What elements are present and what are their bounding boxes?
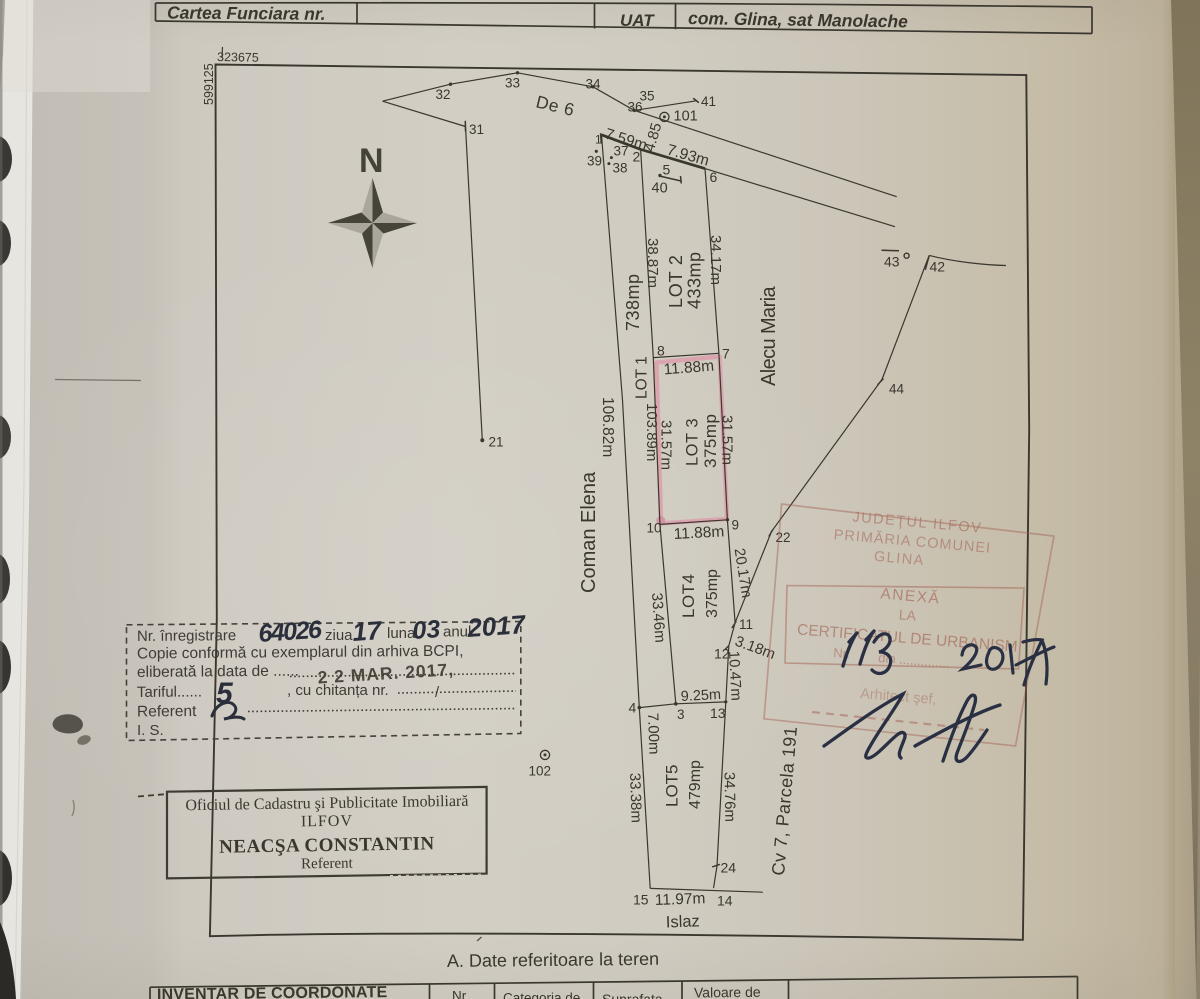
svg-text:20.17m: 20.17m (731, 547, 756, 599)
svg-text:24: 24 (721, 860, 737, 876)
svg-text:479mp: 479mp (687, 760, 704, 809)
svg-text:Valoare de: Valoare de (694, 984, 761, 999)
svg-text:10.47m: 10.47m (725, 650, 745, 701)
svg-text:2017: 2017 (465, 609, 527, 643)
svg-text:11: 11 (739, 617, 753, 632)
svg-text:34: 34 (586, 77, 602, 92)
svg-text:4.85: 4.85 (641, 121, 665, 154)
svg-text:03: 03 (411, 615, 441, 645)
svg-text:106.82m: 106.82m (599, 397, 616, 457)
svg-text:32: 32 (436, 87, 451, 102)
svg-text:LOT 2: LOT 2 (666, 254, 686, 308)
svg-text:31.57m: 31.57m (719, 415, 736, 465)
svg-text:7.93m: 7.93m (665, 142, 711, 170)
svg-text:UAT: UAT (620, 11, 655, 30)
svg-text:738mp: 738mp (623, 273, 643, 331)
svg-text:42: 42 (930, 259, 946, 275)
svg-text:11.88m: 11.88m (663, 358, 715, 379)
svg-text:21: 21 (489, 435, 504, 450)
svg-text:33.38m: 33.38m (626, 773, 645, 824)
svg-text:A. Date referitoare la teren: A. Date referitoare la teren (447, 949, 659, 971)
svg-text:103.89m: 103.89m (643, 403, 660, 461)
svg-text:34.17m: 34.17m (707, 235, 724, 285)
svg-text:41: 41 (701, 94, 716, 109)
svg-text:Alecu Maria: Alecu Maria (758, 286, 780, 386)
svg-text:Nr.: Nr. (452, 989, 469, 999)
svg-text:34.76m: 34.76m (721, 772, 739, 822)
svg-text:102: 102 (529, 764, 552, 779)
svg-text:Referent: Referent (137, 703, 197, 721)
svg-text:44: 44 (889, 382, 905, 397)
svg-text:13: 13 (710, 705, 726, 721)
svg-text:ANEXĂ: ANEXĂ (880, 585, 941, 607)
svg-text:Coman Elena: Coman Elena (578, 471, 600, 593)
svg-text:ILFOV: ILFOV (301, 813, 353, 831)
svg-text:LOT 3: LOT 3 (684, 418, 702, 466)
svg-text:I. S.: I. S. (137, 722, 164, 739)
svg-text:Nr. înregistrare: Nr. înregistrare (137, 627, 236, 645)
svg-text:Suprafata: Suprafata (602, 991, 663, 999)
svg-text:8: 8 (657, 343, 665, 359)
svg-text:599125: 599125 (202, 63, 216, 105)
svg-text:33: 33 (505, 76, 520, 91)
svg-text:LOT5: LOT5 (663, 764, 682, 807)
svg-text:GLINA: GLINA (873, 549, 925, 569)
svg-text:Oficiul de Cadastru şi Publici: Oficiul de Cadastru şi Publicitate Imobi… (185, 793, 468, 814)
svg-text:9.25m: 9.25m (680, 687, 721, 705)
svg-text:43: 43 (884, 254, 900, 270)
svg-text:NEACŞA CONSTANTIN: NEACŞA CONSTANTIN (219, 833, 435, 857)
svg-text:64026: 64026 (257, 616, 323, 648)
svg-text:17: 17 (351, 615, 383, 647)
svg-text:LOT4: LOT4 (679, 573, 698, 618)
svg-text:De 6: De 6 (534, 91, 577, 120)
svg-text:LA: LA (898, 606, 917, 623)
svg-text:14: 14 (717, 893, 733, 909)
svg-text:2 2 MAR. 2017,: 2 2 MAR. 2017, (317, 659, 455, 687)
svg-text:com. Glina, sat Manolache: com. Glina, sat Manolache (688, 8, 908, 31)
svg-text:5: 5 (663, 162, 671, 178)
svg-text:11.97m: 11.97m (655, 890, 706, 909)
svg-text:Cv 7, Parcela 191: Cv 7, Parcela 191 (768, 725, 801, 876)
svg-text:375mp: 375mp (704, 569, 721, 618)
svg-text:N: N (359, 142, 384, 180)
svg-text:31.57m: 31.57m (658, 420, 675, 470)
svg-text:101: 101 (674, 109, 698, 125)
svg-text:3: 3 (677, 707, 685, 722)
svg-text:Tariful......: Tariful...... (137, 683, 202, 701)
svg-text:31: 31 (469, 122, 484, 137)
svg-text:11.88m: 11.88m (673, 523, 724, 543)
svg-text:323675: 323675 (217, 50, 259, 65)
svg-text:38: 38 (613, 161, 628, 176)
svg-text:/: / (435, 684, 440, 701)
svg-text:433mp: 433mp (685, 251, 705, 309)
svg-text:375mp: 375mp (701, 414, 720, 468)
svg-text:7.00m: 7.00m (644, 713, 662, 755)
svg-text:10: 10 (647, 521, 662, 536)
svg-text:CERTIFICATUL DE URBANISM: CERTIFICATUL DE URBANISM (797, 621, 1019, 655)
svg-text:LOT 1: LOT 1 (634, 356, 651, 399)
svg-text:ziua: ziua (325, 627, 353, 644)
svg-text:36: 36 (628, 100, 643, 115)
svg-text:INVENTAR DE COORDONATE: INVENTAR DE COORDONATE (157, 984, 388, 999)
svg-text:Referent: Referent (301, 856, 354, 873)
svg-text:6: 6 (710, 169, 718, 185)
svg-text:1: 1 (595, 133, 602, 147)
svg-text:Islaz: Islaz (666, 912, 701, 931)
svg-text:40: 40 (652, 181, 668, 197)
svg-text:38.87m: 38.87m (644, 238, 661, 288)
svg-text:7: 7 (722, 346, 730, 362)
svg-text:Copie conformă cu exemplarul d: Copie conformă cu exemplarul din arhiva … (137, 643, 464, 663)
svg-text:Categoria de: Categoria de (503, 991, 580, 999)
svg-text:4: 4 (629, 700, 637, 716)
svg-text:15: 15 (633, 892, 649, 908)
svg-text:Cartea Funciara nr.: Cartea Funciara nr. (167, 3, 326, 24)
svg-text:33.46m: 33.46m (648, 592, 668, 643)
svg-text:39: 39 (587, 154, 602, 169)
svg-text:9: 9 (732, 518, 740, 533)
